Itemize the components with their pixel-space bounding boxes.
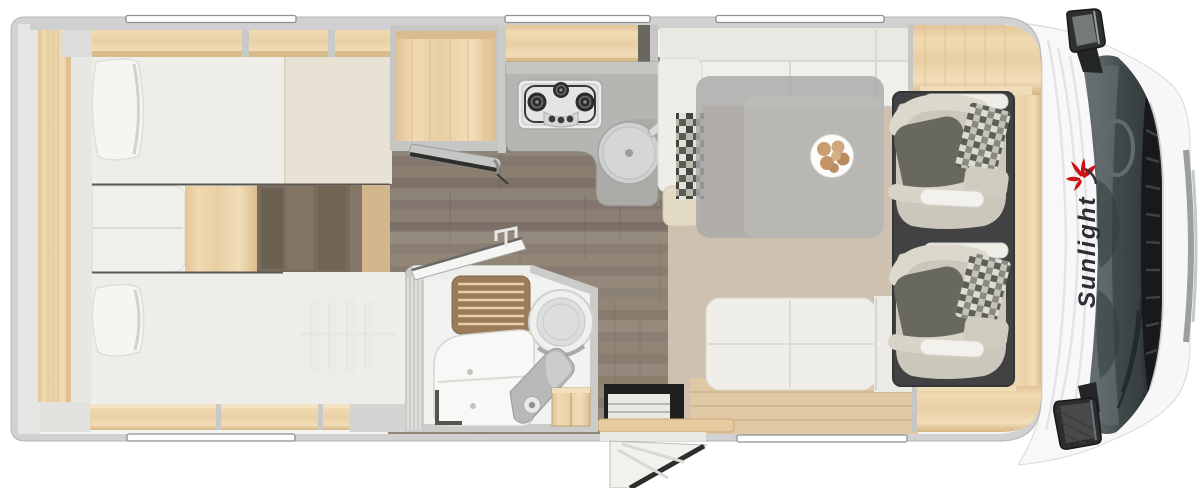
svg-text:Sunlight: Sunlight xyxy=(1074,196,1101,308)
